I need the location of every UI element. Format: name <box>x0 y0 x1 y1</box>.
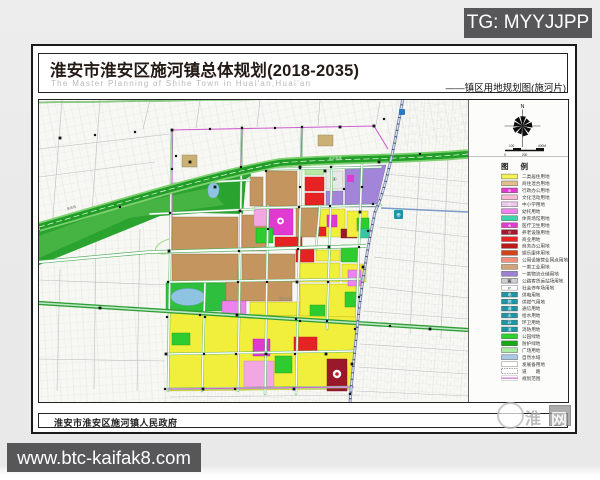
svg-text:公用设施营业网点用地: 公用设施营业网点用地 <box>522 257 568 264</box>
svg-text:文化活动用地: 文化活动用地 <box>522 194 550 201</box>
svg-text:水: 水 <box>508 312 512 318</box>
svg-text:④: ④ <box>332 177 337 183</box>
svg-text:100: 100 <box>509 144 515 148</box>
svg-text:环: 环 <box>508 320 512 325</box>
svg-text:规划范围: 规划范围 <box>522 375 541 382</box>
svg-text:⊙: ⊙ <box>508 230 511 235</box>
svg-text:⊕: ⊕ <box>508 223 511 228</box>
svg-text:公园绿地: 公园绿地 <box>522 333 541 340</box>
svg-text:供燃气用地: 供燃气用地 <box>522 298 545 305</box>
svg-text:客: 客 <box>508 277 512 283</box>
svg-text:施河大道: 施河大道 <box>279 296 293 301</box>
svg-text:公路客货运站场用地: 公路客货运站场用地 <box>522 277 564 284</box>
svg-text:消: 消 <box>508 326 512 332</box>
svg-text:一类工业用地: 一类工业用地 <box>522 264 550 271</box>
svg-text:P: P <box>508 285 511 290</box>
svg-text:发展备用地: 发展备用地 <box>522 361 545 368</box>
svg-text:商住混合用地: 商住混合用地 <box>522 180 550 187</box>
svg-text:燃: 燃 <box>508 298 512 304</box>
svg-text:防护绿地: 防护绿地 <box>522 340 541 347</box>
svg-text:养老设施用地: 养老设施用地 <box>522 229 550 236</box>
svg-text:幼托用地: 幼托用地 <box>522 208 541 215</box>
svg-text:通信用地: 通信用地 <box>522 305 541 312</box>
svg-text:商业用地: 商业用地 <box>522 236 541 243</box>
svg-text:供电用地: 供电用地 <box>522 291 541 298</box>
svg-text:给水用地: 给水用地 <box>522 312 541 319</box>
svg-text:400M: 400M <box>538 144 546 148</box>
svg-text:⊕: ⊕ <box>508 188 511 193</box>
svg-text:道 路: 道 路 <box>522 368 541 375</box>
svg-text:医疗卫生用地: 医疗卫生用地 <box>522 222 550 229</box>
svg-text:体育场馆用地: 体育场馆用地 <box>522 215 550 222</box>
svg-text:一类物流仓储用地: 一类物流仓储用地 <box>522 271 559 278</box>
svg-text:商务办公用地: 商务办公用地 <box>522 243 550 250</box>
svg-text:N: N <box>521 104 525 110</box>
svg-text:娱乐康体用地: 娱乐康体用地 <box>522 250 550 257</box>
svg-text:图 例: 图 例 <box>501 161 533 171</box>
svg-text:通: 通 <box>508 305 512 311</box>
svg-text:广场用地: 广场用地 <box>522 347 541 354</box>
svg-text:中小学用地: 中小学用地 <box>522 201 545 208</box>
svg-text:二类居住用地: 二类居住用地 <box>522 173 550 180</box>
svg-text:环卫用地: 环卫用地 <box>522 319 541 326</box>
svg-text:社会停车场用地: 社会停车场用地 <box>522 284 555 291</box>
svg-text:消防用地: 消防用地 <box>522 326 541 333</box>
svg-text:⊕: ⊕ <box>396 213 401 219</box>
svg-text:行政办公用地: 行政办公用地 <box>522 187 550 194</box>
svg-text:电: 电 <box>508 291 512 297</box>
svg-text:文: 文 <box>508 201 512 207</box>
svg-text:自然水域: 自然水域 <box>522 354 541 361</box>
